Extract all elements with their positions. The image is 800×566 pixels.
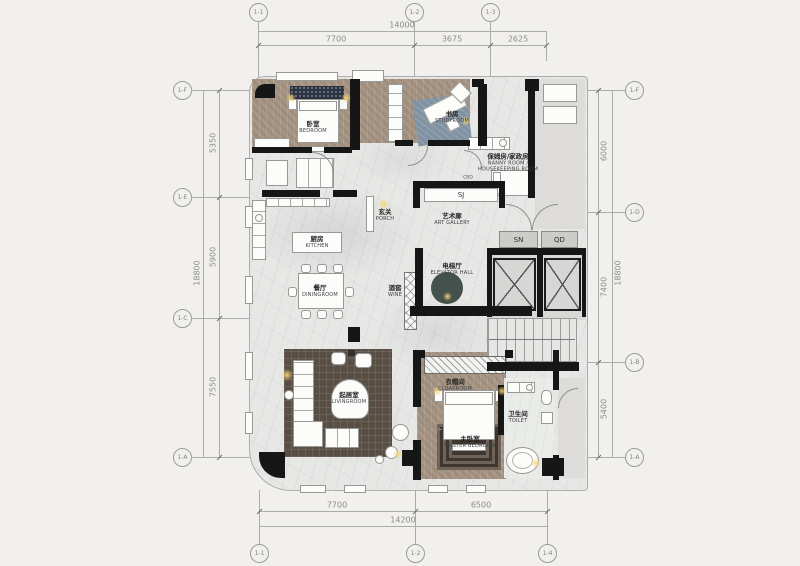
room-label-wine: 酒窖 WINE: [388, 284, 402, 298]
grid-bubble-bottom-1: 1-1: [250, 544, 269, 563]
grid-bubble-top-2: 1-2: [405, 3, 424, 22]
grid-bubble-bottom-2: 1-2: [406, 544, 425, 563]
room-label-cn: 玄关: [376, 208, 394, 216]
dim-line-bottom-segs: [259, 511, 547, 512]
window: [300, 485, 326, 493]
wall: [324, 147, 352, 153]
room-label-cn: 厨房: [305, 235, 328, 243]
stair-handrail: [489, 339, 575, 340]
grid-line: [586, 212, 625, 213]
wall: [553, 350, 559, 390]
wall: [542, 458, 564, 476]
room-label-en: TOILET: [508, 418, 528, 424]
wall: [415, 248, 423, 310]
sink: [499, 139, 507, 147]
dim-text: 5350: [209, 133, 218, 153]
ac-unit: [543, 106, 577, 124]
room-label-cn: 电梯厅: [431, 262, 474, 270]
grid-label: 1-F: [178, 87, 187, 94]
wall: [487, 362, 579, 371]
wall: [252, 147, 312, 153]
master-pillows: [445, 392, 493, 405]
grid-bubble-right-1: 1-F: [625, 81, 644, 100]
room-label-en: KITCHEN: [305, 243, 328, 249]
kitchen-counter: [252, 200, 266, 260]
grid-label: 1-3: [486, 9, 496, 16]
wall: [413, 352, 421, 407]
dim-text: 5400: [600, 399, 609, 419]
grid-line: [490, 21, 491, 78]
grid-label: 1-F: [630, 87, 639, 94]
wall: [528, 80, 535, 198]
grid-label: 1-1: [254, 9, 264, 16]
round-chair: [392, 424, 409, 441]
grid-line: [547, 490, 548, 544]
room-label-cn: 书房: [435, 110, 469, 118]
lamp-glow: [393, 449, 403, 459]
floor-plan-sheet: { "sheet": {"type": "apartment-floor-pla…: [0, 0, 800, 566]
wall: [413, 440, 421, 480]
dining-chair: [301, 264, 311, 273]
grid-label: 1-B: [630, 359, 640, 366]
grid-bubble-left-1: 1-F: [173, 81, 192, 100]
grid-line: [586, 457, 625, 458]
window: [245, 352, 253, 380]
pouf: [355, 353, 372, 368]
ac-unit: [543, 84, 577, 102]
room-label-nanny: 保姆房/家政房 NANNY ROOM / HOUSEKEEPING ROOM: [473, 153, 543, 174]
grid-bubble-left-4: 1-A: [173, 448, 192, 467]
room-label-en: ART GALLERY: [434, 220, 470, 226]
kitchen-sink: [255, 214, 263, 222]
grid-bubble-bottom-3: 1-4: [538, 544, 557, 563]
dim-text: 18800: [193, 260, 202, 285]
grid-line: [414, 21, 415, 78]
dining-chair: [333, 310, 343, 319]
sofa: [293, 360, 314, 423]
dining-chair: [288, 287, 297, 297]
wc: [541, 390, 552, 405]
porch-console: [366, 196, 374, 232]
grid-line: [258, 21, 259, 78]
window: [245, 412, 253, 434]
dining-chair: [333, 264, 343, 273]
wall: [525, 79, 539, 91]
room-label-living: 起居室 LIVINGROOM: [332, 391, 366, 405]
room-label-en: BEDROOM: [299, 128, 327, 134]
kitchen-appliances: [266, 198, 330, 207]
grid-bubble-top-1: 1-1: [249, 3, 268, 22]
wall: [413, 188, 420, 208]
shaft-tag-label: SN: [514, 236, 524, 244]
room-label-en: MASTER BEDROOM: [444, 443, 495, 449]
wall: [350, 79, 360, 150]
cabinet: [266, 160, 288, 186]
grid-bubble-top-3: 1-3: [481, 3, 500, 22]
dim-text: 7400: [600, 277, 609, 297]
dim-line-left-total: [203, 90, 204, 457]
wall: [413, 181, 505, 188]
coffee-table: [325, 428, 359, 448]
dim-line-top-total: [258, 31, 546, 32]
sofa-chaise: [293, 421, 323, 447]
dim-text: 7700: [326, 35, 346, 44]
wall: [410, 306, 532, 316]
basin: [526, 384, 533, 391]
bed-pillows: [299, 101, 337, 111]
grid-label: 1-C: [177, 315, 187, 322]
room-label-toilet: 卫生间 TOILET: [508, 410, 528, 424]
room-label-en: CLOAKROOM: [438, 386, 472, 392]
room-label-cn: 餐厅: [302, 284, 338, 292]
dim-text: 7700: [327, 501, 347, 510]
grid-bubble-left-2: 1-E: [173, 188, 192, 207]
room-label-en: LIVINGROOM: [332, 399, 366, 405]
room-label-bedroom: 卧室 BEDROOM: [299, 120, 327, 134]
side-table: [284, 390, 294, 400]
room-label-dining: 餐厅 DININGROOM: [302, 284, 338, 298]
wall: [582, 255, 586, 317]
elevator-shaft-2: [544, 258, 581, 311]
room-label-en: ELEVATOR HALL: [431, 270, 474, 276]
room-label-cn: 艺术廊: [434, 212, 470, 220]
dim-line-bottom-total: [259, 526, 547, 527]
wall: [348, 327, 360, 342]
room-label-en: STUDYROOM: [435, 118, 469, 124]
wall: [487, 255, 492, 317]
dim-text: 7550: [209, 377, 218, 397]
room-label-cn: 卧室: [299, 120, 327, 128]
tag-sj: SJ: [458, 191, 465, 199]
room-label-cn: 卫生间: [508, 410, 528, 418]
cushion: [348, 350, 355, 356]
room-label-en: WINE: [388, 292, 402, 298]
lamp-glow: [341, 93, 351, 103]
grid-bubble-right-4: 1-A: [625, 448, 644, 467]
room-label-en: NANNY ROOM / HOUSEKEEPING ROOM: [473, 161, 543, 174]
window: [245, 158, 253, 180]
room-label-study: 书房 STUDYROOM: [435, 110, 469, 124]
window: [276, 72, 338, 81]
grid-label: 1-4: [543, 550, 553, 557]
grid-label: 1-2: [410, 9, 420, 16]
dim-text: 2625: [508, 35, 528, 44]
floor-lamp-glow: [281, 369, 293, 381]
grid-line: [586, 362, 625, 363]
dim-text: 14000: [389, 21, 414, 30]
room-label-cn: 酒窖: [388, 284, 402, 292]
grid-bubble-left-3: 1-C: [173, 309, 192, 328]
dining-chair: [317, 264, 327, 273]
room-label-elevator-hall: 电梯厅 ELEVATOR HALL: [431, 262, 474, 276]
shower: [541, 412, 553, 424]
tag-cbd: CBD: [463, 176, 473, 181]
dining-chair: [301, 310, 311, 319]
dining-chair: [345, 287, 354, 297]
dim-text: 6500: [471, 501, 491, 510]
window: [466, 485, 486, 493]
wall: [262, 190, 320, 197]
room-label-gallery: 艺术廊 ART GALLERY: [434, 212, 470, 226]
dim-text: 3675: [442, 35, 462, 44]
wall: [472, 79, 484, 87]
window: [245, 206, 253, 228]
room-label-cloakroom: 衣帽间 CLOAKROOM: [438, 378, 472, 392]
room-label-cn: 主卧室: [444, 435, 495, 443]
dim-text: 14200: [390, 516, 415, 525]
lamp-glow: [531, 458, 541, 468]
grid-label: 1-A: [630, 454, 640, 461]
grid-label: 1-2: [411, 550, 421, 557]
room-label-en: DININGROOM: [302, 292, 338, 298]
wall: [255, 84, 275, 98]
wall: [487, 248, 586, 255]
grid-bubble-right-2: 1-D: [625, 203, 644, 222]
grid-label: 1-E: [178, 194, 188, 201]
elevator-shaft-1: [493, 258, 536, 311]
lamp-glow: [286, 93, 296, 103]
room-label-master-bedroom: 主卧室 MASTER BEDROOM: [444, 435, 495, 449]
dim-line-left-segs: [219, 90, 220, 457]
shaft-tag-label: QD: [554, 236, 565, 244]
dim-line-top-segs: [258, 45, 546, 46]
grid-label: 1-1: [255, 550, 265, 557]
wall: [333, 190, 357, 197]
grid-line: [586, 90, 625, 91]
lamp-glow: [497, 386, 507, 396]
wall: [428, 140, 470, 146]
window: [245, 276, 253, 304]
shaft-tag-sn: SN: [499, 231, 538, 248]
room-label-cn: 衣帽间: [438, 378, 472, 386]
pouf: [331, 352, 346, 365]
wall: [499, 188, 505, 208]
study-wardrobe: [388, 84, 403, 142]
room-label-cn: 起居室: [332, 391, 366, 399]
wall: [478, 84, 487, 146]
dining-chair: [317, 310, 327, 319]
room-label-porch: 玄关 PORCH: [376, 208, 394, 222]
room-label-kitchen: 厨房 KITCHEN: [305, 235, 328, 249]
bathtub-inner: [512, 452, 533, 469]
window: [344, 485, 366, 493]
grid-bubble-right-3: 1-B: [625, 353, 644, 372]
room-label-cn: 保姆房/家政房: [473, 153, 543, 161]
window: [428, 485, 448, 493]
dim-text: 5900: [209, 247, 218, 267]
grid-label: 1-D: [629, 209, 640, 216]
grid-line: [259, 490, 260, 544]
lamp-glow: [443, 292, 452, 301]
room-label-en: PORCH: [376, 216, 394, 222]
dim-text: 6000: [600, 141, 609, 161]
plant: [375, 455, 384, 464]
wall: [505, 350, 513, 358]
dim-text: 18800: [614, 260, 623, 285]
grid-label: 1-A: [178, 454, 188, 461]
shaft-tag-qd: QD: [541, 231, 578, 248]
wall: [537, 255, 543, 317]
